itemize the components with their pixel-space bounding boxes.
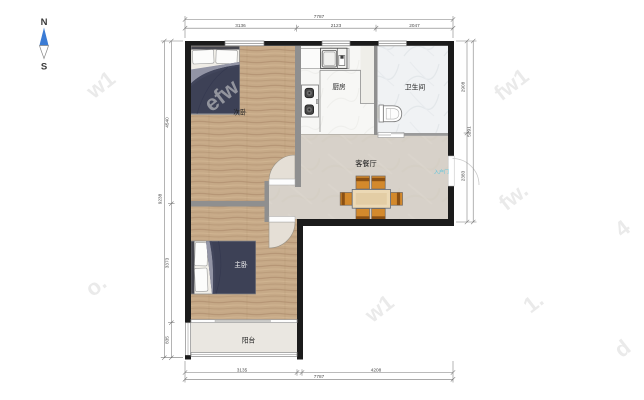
svg-text:厨房: 厨房: [332, 82, 346, 91]
svg-text:N: N: [41, 17, 48, 28]
svg-text:次卧: 次卧: [233, 108, 247, 117]
svg-text:2123: 2123: [331, 23, 342, 28]
svg-text:阳台: 阳台: [242, 335, 256, 344]
svg-text:2908: 2908: [460, 81, 465, 92]
svg-text:卫生间: 卫生间: [405, 82, 426, 91]
svg-text:9238: 9238: [158, 193, 163, 204]
svg-text:3135: 3135: [237, 367, 248, 372]
svg-text:835: 835: [165, 336, 170, 344]
svg-text:7787: 7787: [314, 14, 325, 19]
svg-text:2383: 2383: [460, 170, 465, 181]
svg-text:主卧: 主卧: [234, 260, 248, 269]
svg-text:3136: 3136: [235, 23, 246, 28]
svg-text:5291: 5291: [467, 126, 472, 137]
svg-text:2047: 2047: [409, 23, 420, 28]
svg-text:7787: 7787: [314, 374, 325, 379]
svg-text:S: S: [41, 62, 47, 73]
svg-text:入户门: 入户门: [434, 169, 449, 176]
svg-text:4540: 4540: [165, 117, 170, 128]
svg-text:3373: 3373: [165, 257, 170, 268]
svg-text:客餐厅: 客餐厅: [355, 159, 377, 168]
svg-text:4208: 4208: [371, 367, 382, 372]
